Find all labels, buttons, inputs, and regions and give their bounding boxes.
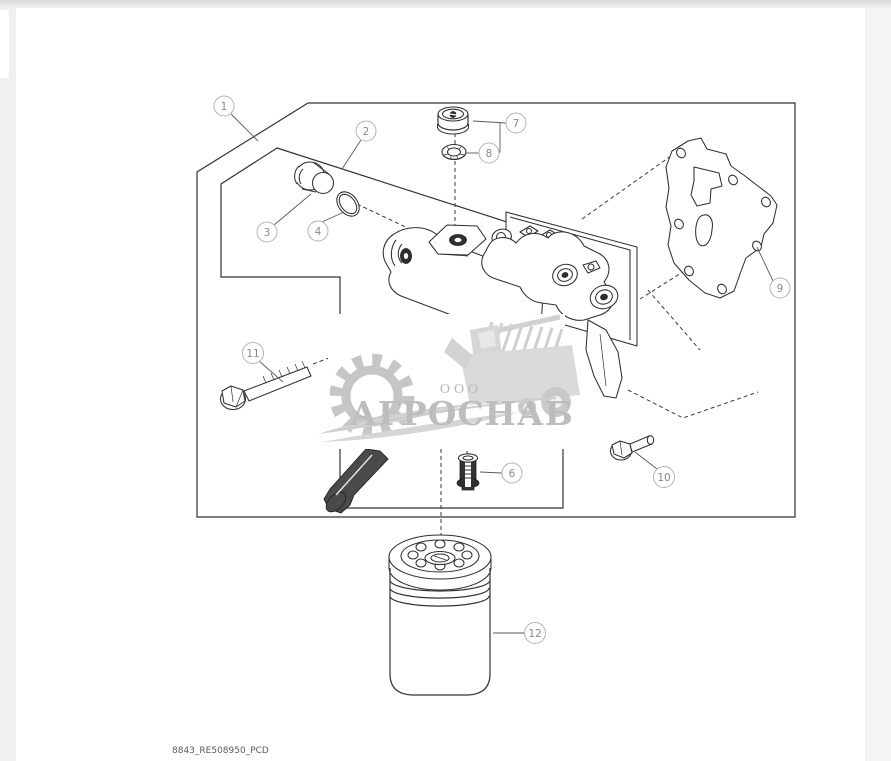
callout-6: 6	[480, 463, 522, 483]
washer-part	[442, 145, 466, 160]
callout-10: 10	[635, 452, 675, 488]
svg-text:6: 6	[509, 468, 516, 480]
svg-text:1: 1	[221, 101, 228, 113]
long-bolt-part	[221, 361, 312, 410]
callout-8: 8	[466, 143, 499, 163]
drain-fitting-part	[457, 454, 479, 490]
callout-4: 4	[308, 212, 344, 241]
svg-text:4: 4	[315, 226, 322, 238]
callout-7: 7	[473, 113, 526, 152]
callout-2: 2	[342, 121, 376, 169]
plug-part	[295, 162, 334, 194]
cap-part	[438, 107, 469, 134]
svg-text:11: 11	[246, 348, 259, 360]
exploded-parts-diagram: ООО АГРОСНАБ	[0, 0, 891, 761]
svg-text:10: 10	[657, 472, 670, 484]
gasket-part	[666, 138, 777, 298]
callout-11: 11	[243, 343, 284, 383]
filter-cartridge-part	[389, 535, 491, 695]
callout-1: 1	[214, 96, 258, 141]
drawing-code-label: 8843_RE508950_PCD	[172, 746, 269, 756]
svg-text:8: 8	[486, 148, 493, 160]
svg-text:12: 12	[528, 628, 541, 640]
callout-9: 9	[757, 247, 790, 298]
short-bolt-part	[611, 436, 654, 460]
svg-text:7: 7	[513, 118, 520, 130]
svg-text:3: 3	[264, 227, 271, 239]
callout-3: 3	[257, 194, 311, 242]
callout-12: 12	[493, 623, 546, 644]
watermark: ООО АГРОСНАБ	[318, 314, 580, 449]
svg-text:2: 2	[363, 126, 370, 138]
watermark-company-name: АГРОСНАБ	[350, 394, 574, 433]
svg-text:9: 9	[777, 283, 784, 295]
